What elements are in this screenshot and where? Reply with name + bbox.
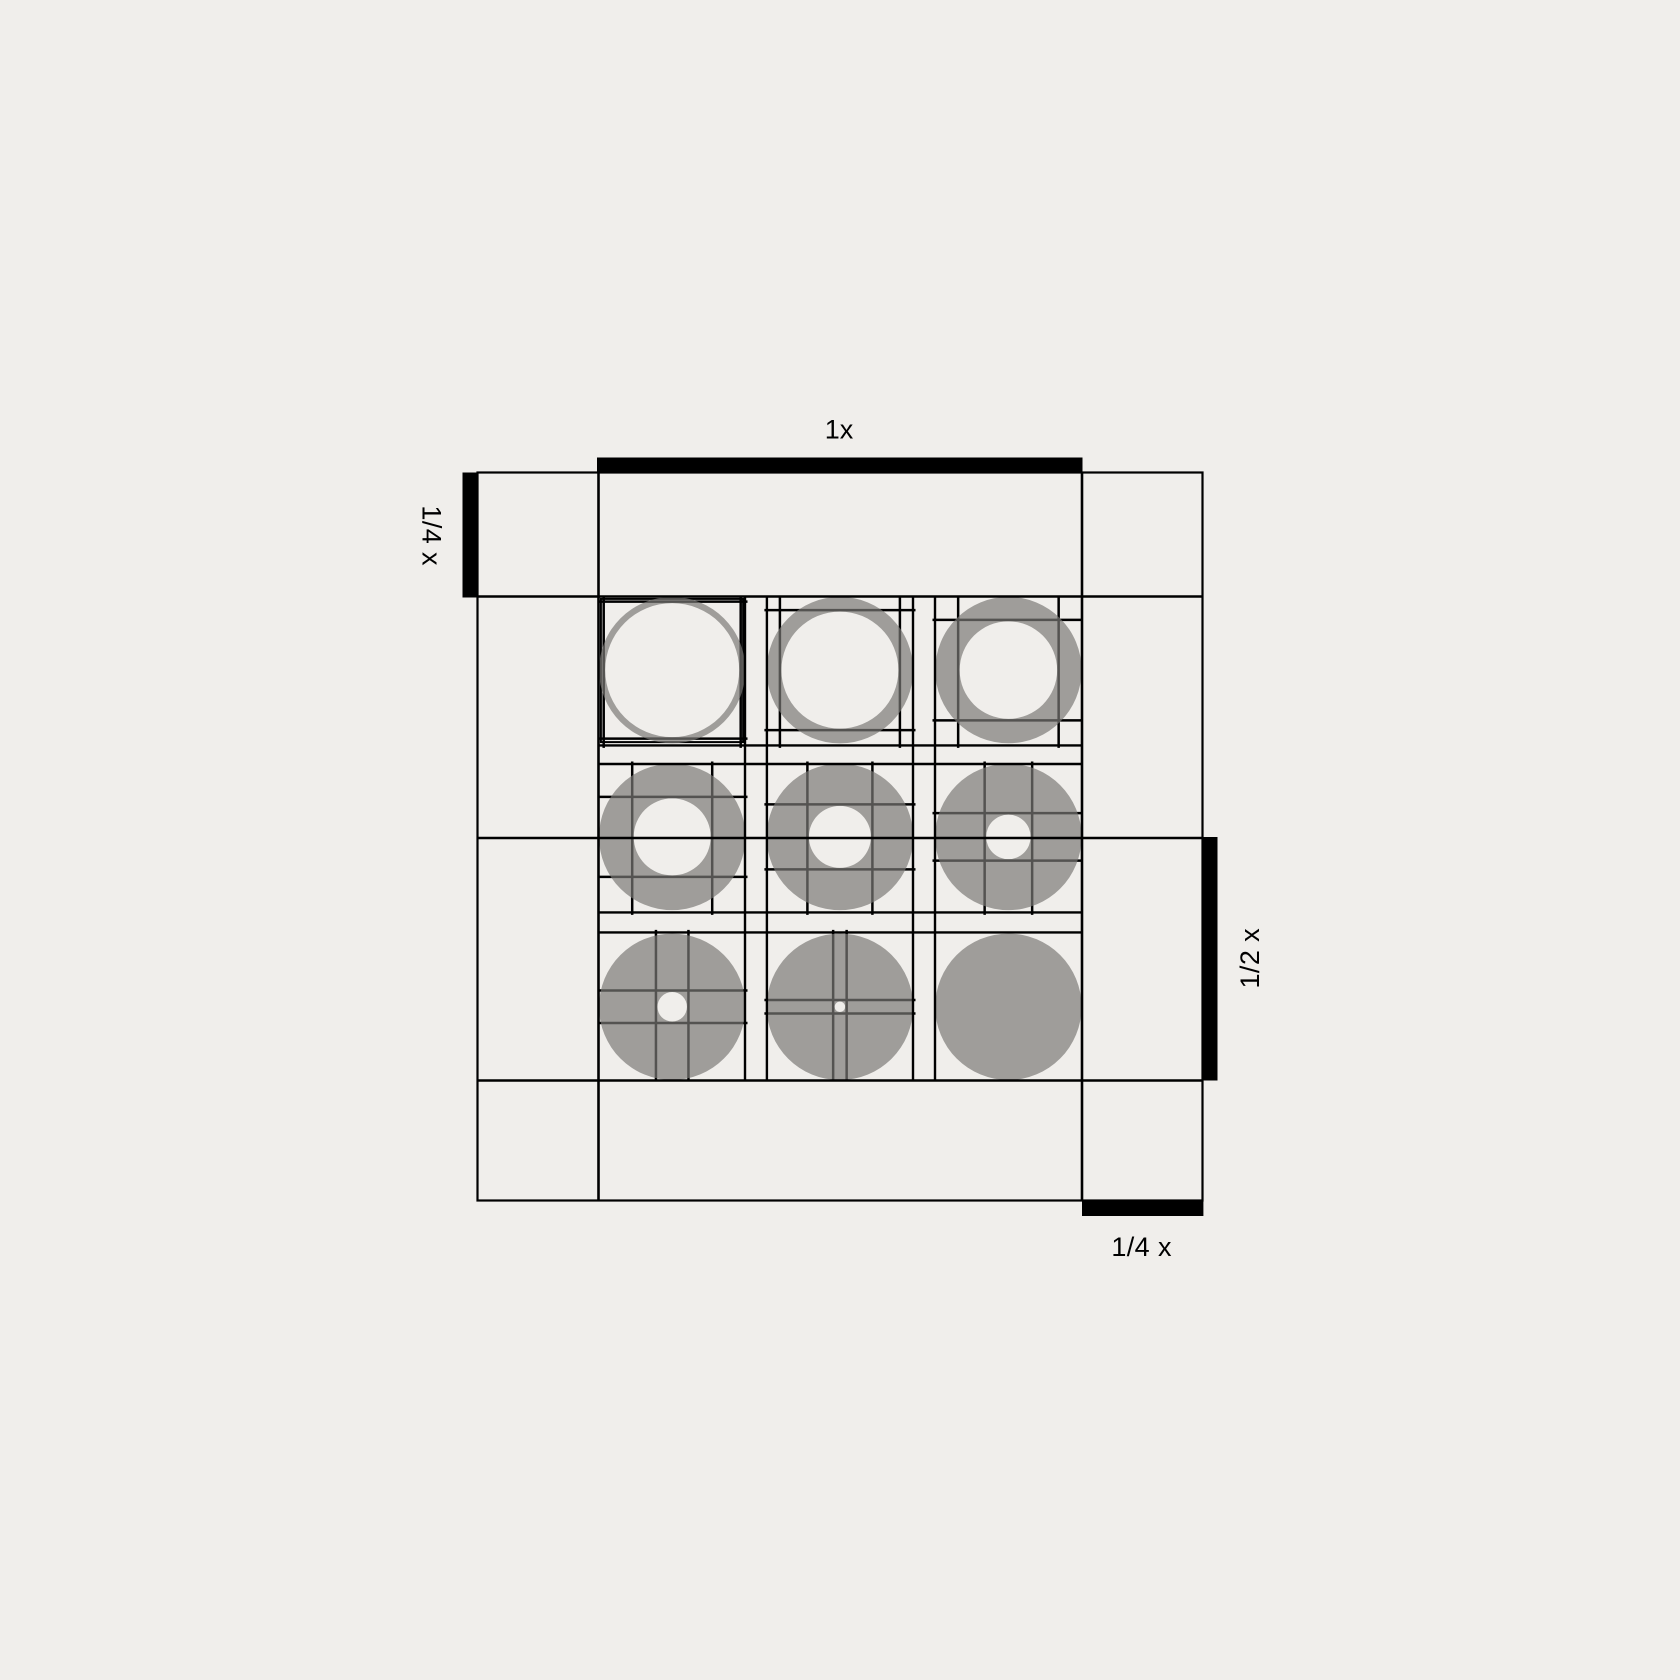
svg-text:1/4 x: 1/4 x [416, 505, 446, 566]
svg-text:1/4 x: 1/4 x [1111, 1232, 1172, 1262]
svg-text:1x: 1x [825, 415, 854, 445]
svg-text:1/2 x: 1/2 x [1235, 928, 1265, 989]
